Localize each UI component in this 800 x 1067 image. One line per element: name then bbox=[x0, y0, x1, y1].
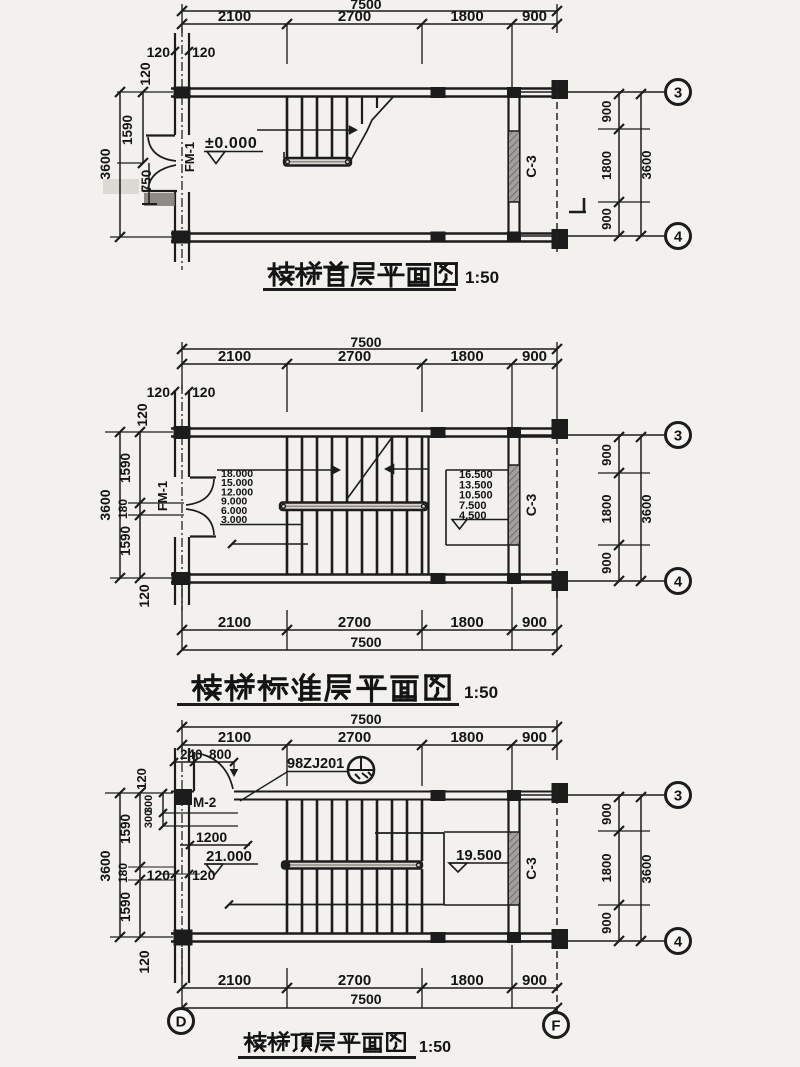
svg-text:900: 900 bbox=[599, 552, 614, 574]
svg-text:2100: 2100 bbox=[218, 348, 251, 365]
svg-text:3600: 3600 bbox=[97, 850, 113, 881]
svg-text:3600: 3600 bbox=[639, 495, 654, 524]
svg-text:3600: 3600 bbox=[97, 148, 113, 179]
svg-text:2100: 2100 bbox=[218, 729, 251, 746]
svg-text:2700: 2700 bbox=[338, 614, 371, 631]
svg-text:1200: 1200 bbox=[196, 829, 227, 845]
svg-text:180: 180 bbox=[116, 499, 130, 519]
svg-text:120: 120 bbox=[147, 867, 171, 883]
svg-text:1800: 1800 bbox=[450, 972, 483, 989]
svg-text:120: 120 bbox=[147, 44, 171, 60]
svg-text:120: 120 bbox=[134, 403, 150, 427]
svg-text:FM-1: FM-1 bbox=[182, 142, 197, 172]
svg-text:3: 3 bbox=[674, 85, 682, 102]
svg-text:120: 120 bbox=[134, 768, 149, 790]
svg-text:98ZJ201: 98ZJ201 bbox=[287, 756, 344, 772]
svg-text:M-2: M-2 bbox=[193, 795, 216, 810]
svg-text:120: 120 bbox=[137, 62, 153, 86]
svg-text:C-3: C-3 bbox=[523, 155, 539, 178]
svg-text:120: 120 bbox=[192, 867, 216, 883]
svg-text:2700: 2700 bbox=[338, 972, 371, 989]
svg-text:900: 900 bbox=[599, 101, 614, 123]
svg-text:3: 3 bbox=[674, 788, 682, 805]
svg-text:4.500: 4.500 bbox=[459, 510, 487, 522]
svg-text:240: 240 bbox=[180, 747, 203, 762]
svg-text:900: 900 bbox=[599, 912, 614, 934]
svg-text:1800: 1800 bbox=[599, 495, 614, 524]
svg-text:1590: 1590 bbox=[118, 453, 133, 483]
svg-text:1590: 1590 bbox=[120, 115, 135, 145]
svg-text:1590: 1590 bbox=[118, 814, 133, 844]
svg-text:7500: 7500 bbox=[350, 634, 381, 650]
svg-text:2700: 2700 bbox=[338, 729, 371, 746]
svg-text:900: 900 bbox=[599, 208, 614, 230]
svg-text:D: D bbox=[176, 1014, 187, 1031]
svg-text:4: 4 bbox=[674, 934, 683, 951]
svg-text:3600: 3600 bbox=[97, 489, 113, 520]
svg-text:FM-1: FM-1 bbox=[155, 481, 170, 511]
svg-text:900: 900 bbox=[522, 614, 547, 631]
svg-text:F: F bbox=[551, 1018, 560, 1035]
svg-text:180: 180 bbox=[116, 863, 130, 883]
svg-text:120: 120 bbox=[136, 584, 152, 608]
svg-text:120: 120 bbox=[147, 384, 171, 400]
svg-text:1800: 1800 bbox=[450, 348, 483, 365]
svg-text:1:50: 1:50 bbox=[464, 683, 498, 702]
svg-text:19.500: 19.500 bbox=[456, 847, 502, 864]
svg-text:300: 300 bbox=[143, 810, 155, 828]
svg-text:900: 900 bbox=[522, 348, 547, 365]
svg-text:7500: 7500 bbox=[350, 711, 381, 727]
svg-text:1800: 1800 bbox=[599, 151, 614, 180]
svg-text:900: 900 bbox=[599, 803, 614, 825]
svg-text:2100: 2100 bbox=[218, 8, 251, 25]
svg-text:2700: 2700 bbox=[338, 8, 371, 25]
svg-text:3600: 3600 bbox=[639, 151, 654, 180]
svg-text:120: 120 bbox=[136, 950, 152, 974]
svg-text:2700: 2700 bbox=[338, 348, 371, 365]
svg-text:1800: 1800 bbox=[450, 8, 483, 25]
svg-text:900: 900 bbox=[522, 729, 547, 746]
svg-text:C-3: C-3 bbox=[523, 857, 539, 880]
svg-text:21.000: 21.000 bbox=[206, 848, 252, 865]
svg-text:1590: 1590 bbox=[118, 892, 133, 922]
svg-text:±0.000: ±0.000 bbox=[205, 135, 257, 152]
svg-text:4: 4 bbox=[674, 229, 683, 246]
svg-text:1:50: 1:50 bbox=[465, 268, 499, 287]
svg-text:1590: 1590 bbox=[118, 526, 133, 556]
svg-text:3600: 3600 bbox=[639, 855, 654, 884]
svg-text:1800: 1800 bbox=[450, 614, 483, 631]
svg-text:900: 900 bbox=[522, 8, 547, 25]
svg-text:C-3: C-3 bbox=[523, 494, 539, 517]
svg-text:900: 900 bbox=[522, 972, 547, 989]
svg-text:900: 900 bbox=[599, 444, 614, 466]
svg-text:1800: 1800 bbox=[450, 729, 483, 746]
svg-text:3: 3 bbox=[674, 428, 682, 445]
svg-text:7500: 7500 bbox=[350, 991, 381, 1007]
svg-text:750: 750 bbox=[139, 170, 154, 193]
svg-text:120: 120 bbox=[192, 44, 216, 60]
svg-text:1:50: 1:50 bbox=[419, 1039, 451, 1056]
svg-text:1800: 1800 bbox=[599, 854, 614, 883]
svg-text:2100: 2100 bbox=[218, 614, 251, 631]
svg-text:120: 120 bbox=[192, 384, 216, 400]
svg-text:4: 4 bbox=[674, 574, 683, 591]
svg-text:2100: 2100 bbox=[218, 972, 251, 989]
svg-text:800: 800 bbox=[209, 747, 232, 762]
